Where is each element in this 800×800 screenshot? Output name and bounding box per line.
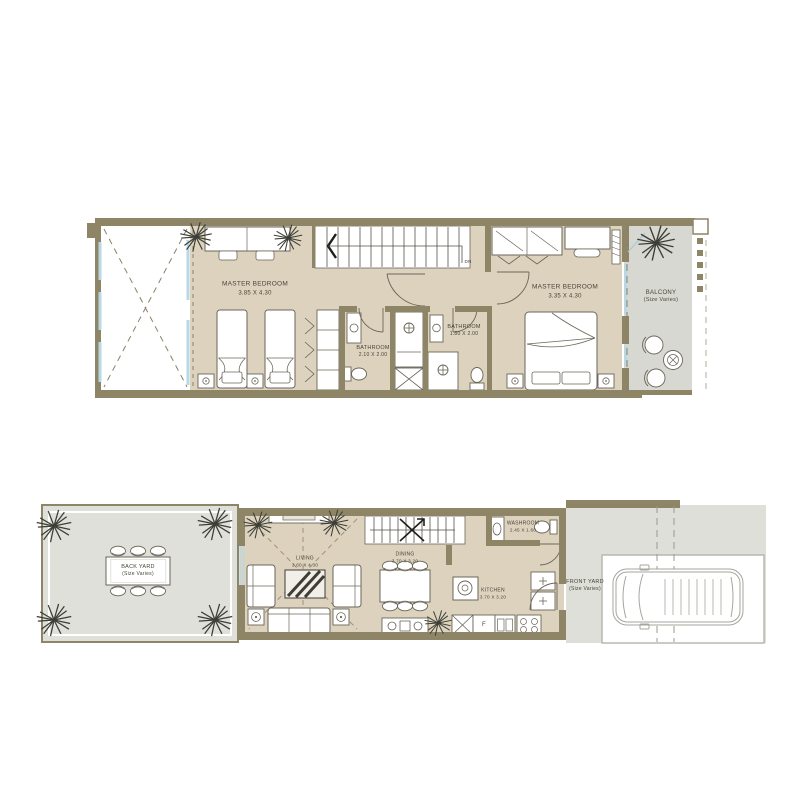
room-label-dining: DINING 3.70 X 3.20 bbox=[392, 552, 418, 565]
ground-stairs bbox=[365, 516, 465, 544]
balcony-corner-column bbox=[693, 219, 708, 234]
room-label-bathroom-right: BATHROOM 1.80 X 2.00 bbox=[447, 324, 480, 338]
room-name: MASTER BEDROOM bbox=[532, 284, 598, 293]
desk bbox=[565, 227, 610, 249]
chair bbox=[256, 251, 274, 260]
outdoor-chair bbox=[151, 546, 166, 556]
kitchen-island bbox=[453, 577, 478, 600]
room-name: DINING bbox=[392, 552, 418, 559]
room-dims: (Size Varies) bbox=[566, 586, 604, 593]
side-table bbox=[333, 609, 349, 625]
room-label-master-bedroom-right: MASTER BEDROOM 3.35 X 4.30 bbox=[532, 284, 598, 301]
pillow bbox=[532, 372, 560, 384]
dining-chair bbox=[398, 601, 413, 611]
single-bed bbox=[217, 310, 247, 388]
dining-table bbox=[380, 570, 430, 602]
side-table bbox=[248, 609, 264, 625]
room-label-front-yard: FRONT YARD (Size Varies) bbox=[566, 579, 604, 593]
room-name: BATHROOM bbox=[356, 345, 389, 352]
fridge-label: F bbox=[482, 621, 486, 629]
room-dims: 3.70 X 3.20 bbox=[392, 558, 418, 564]
room-label-balcony: BALCONY (Size Varies) bbox=[644, 289, 678, 305]
sideboard bbox=[382, 618, 428, 634]
room-label-back-yard: BACK YARD (Size Varies) bbox=[110, 559, 166, 583]
room-label-master-bedroom-left: MASTER BEDROOM 3.85 X 4.30 bbox=[222, 281, 288, 298]
room-dims: 3.70 X 3.20 bbox=[480, 594, 506, 600]
vanity bbox=[347, 313, 361, 343]
car-top-view bbox=[613, 565, 743, 629]
toilet bbox=[470, 368, 484, 391]
upper-floor-plan bbox=[87, 218, 708, 398]
room-dims: 2.45 X 1.60 bbox=[507, 527, 539, 533]
pillow bbox=[562, 372, 590, 384]
nightstand bbox=[507, 374, 523, 388]
room-dims: (Size Varies) bbox=[121, 571, 155, 578]
vanity bbox=[430, 315, 443, 342]
room-dims: 1.80 X 2.00 bbox=[447, 331, 480, 338]
rug bbox=[285, 570, 325, 598]
room-name: BALCONY bbox=[644, 289, 678, 297]
balcony-floor bbox=[624, 226, 692, 390]
nightstand bbox=[198, 374, 214, 388]
room-label-washroom: WASHROOM 2.45 X 1.60 bbox=[507, 521, 539, 534]
room-label-kitchen: KITCHEN 3.70 X 3.20 bbox=[480, 588, 506, 601]
room-label-bathroom-left: BATHROOM 2.10 X 2.00 bbox=[356, 345, 389, 359]
room-name: KITCHEN bbox=[480, 588, 506, 595]
room-dims: 3.85 X 4.30 bbox=[222, 289, 288, 297]
outdoor-chair bbox=[131, 586, 146, 596]
room-name: BACK YARD bbox=[121, 564, 155, 571]
room-name: LIVING bbox=[292, 556, 318, 563]
toilet bbox=[344, 367, 367, 381]
dining-chair bbox=[383, 601, 398, 611]
outdoor-chair bbox=[131, 546, 146, 556]
room-name: FRONT YARD bbox=[566, 579, 604, 586]
room-dims: (Size Varies) bbox=[644, 297, 678, 304]
floor-plan-graphic bbox=[0, 0, 800, 800]
ac-unit bbox=[612, 230, 620, 264]
balcony-chair bbox=[647, 369, 665, 387]
room-label-living: LIVING 3.60 X 4.30 bbox=[292, 556, 318, 569]
room-name: BATHROOM bbox=[447, 324, 480, 331]
room-dims: 3.35 X 4.30 bbox=[532, 292, 598, 300]
dining-chair bbox=[413, 601, 428, 611]
outdoor-chair bbox=[111, 586, 126, 596]
upper-stairs bbox=[315, 226, 470, 268]
shower bbox=[395, 312, 423, 367]
nightstand bbox=[247, 374, 263, 388]
chair bbox=[219, 251, 237, 260]
outdoor-chair bbox=[111, 546, 126, 556]
balcony-chair bbox=[645, 336, 663, 354]
dining-furniture bbox=[380, 561, 430, 634]
room-dims: 2.10 X 2.00 bbox=[356, 352, 389, 359]
chair bbox=[574, 249, 600, 257]
nightstand bbox=[598, 374, 614, 388]
vanity bbox=[490, 517, 504, 541]
floor-plan-page: MASTER BEDROOM 3.85 X 4.30 MASTER BEDROO… bbox=[0, 0, 800, 800]
privacy-screen bbox=[697, 238, 703, 292]
sofa bbox=[268, 608, 330, 634]
stairs-dn-label: DN bbox=[465, 259, 472, 265]
room-name: WASHROOM bbox=[507, 521, 539, 528]
room-name: MASTER BEDROOM bbox=[222, 281, 288, 290]
single-bed bbox=[265, 310, 295, 388]
room-dims: 3.60 X 4.30 bbox=[292, 562, 318, 568]
outdoor-chair bbox=[151, 586, 166, 596]
